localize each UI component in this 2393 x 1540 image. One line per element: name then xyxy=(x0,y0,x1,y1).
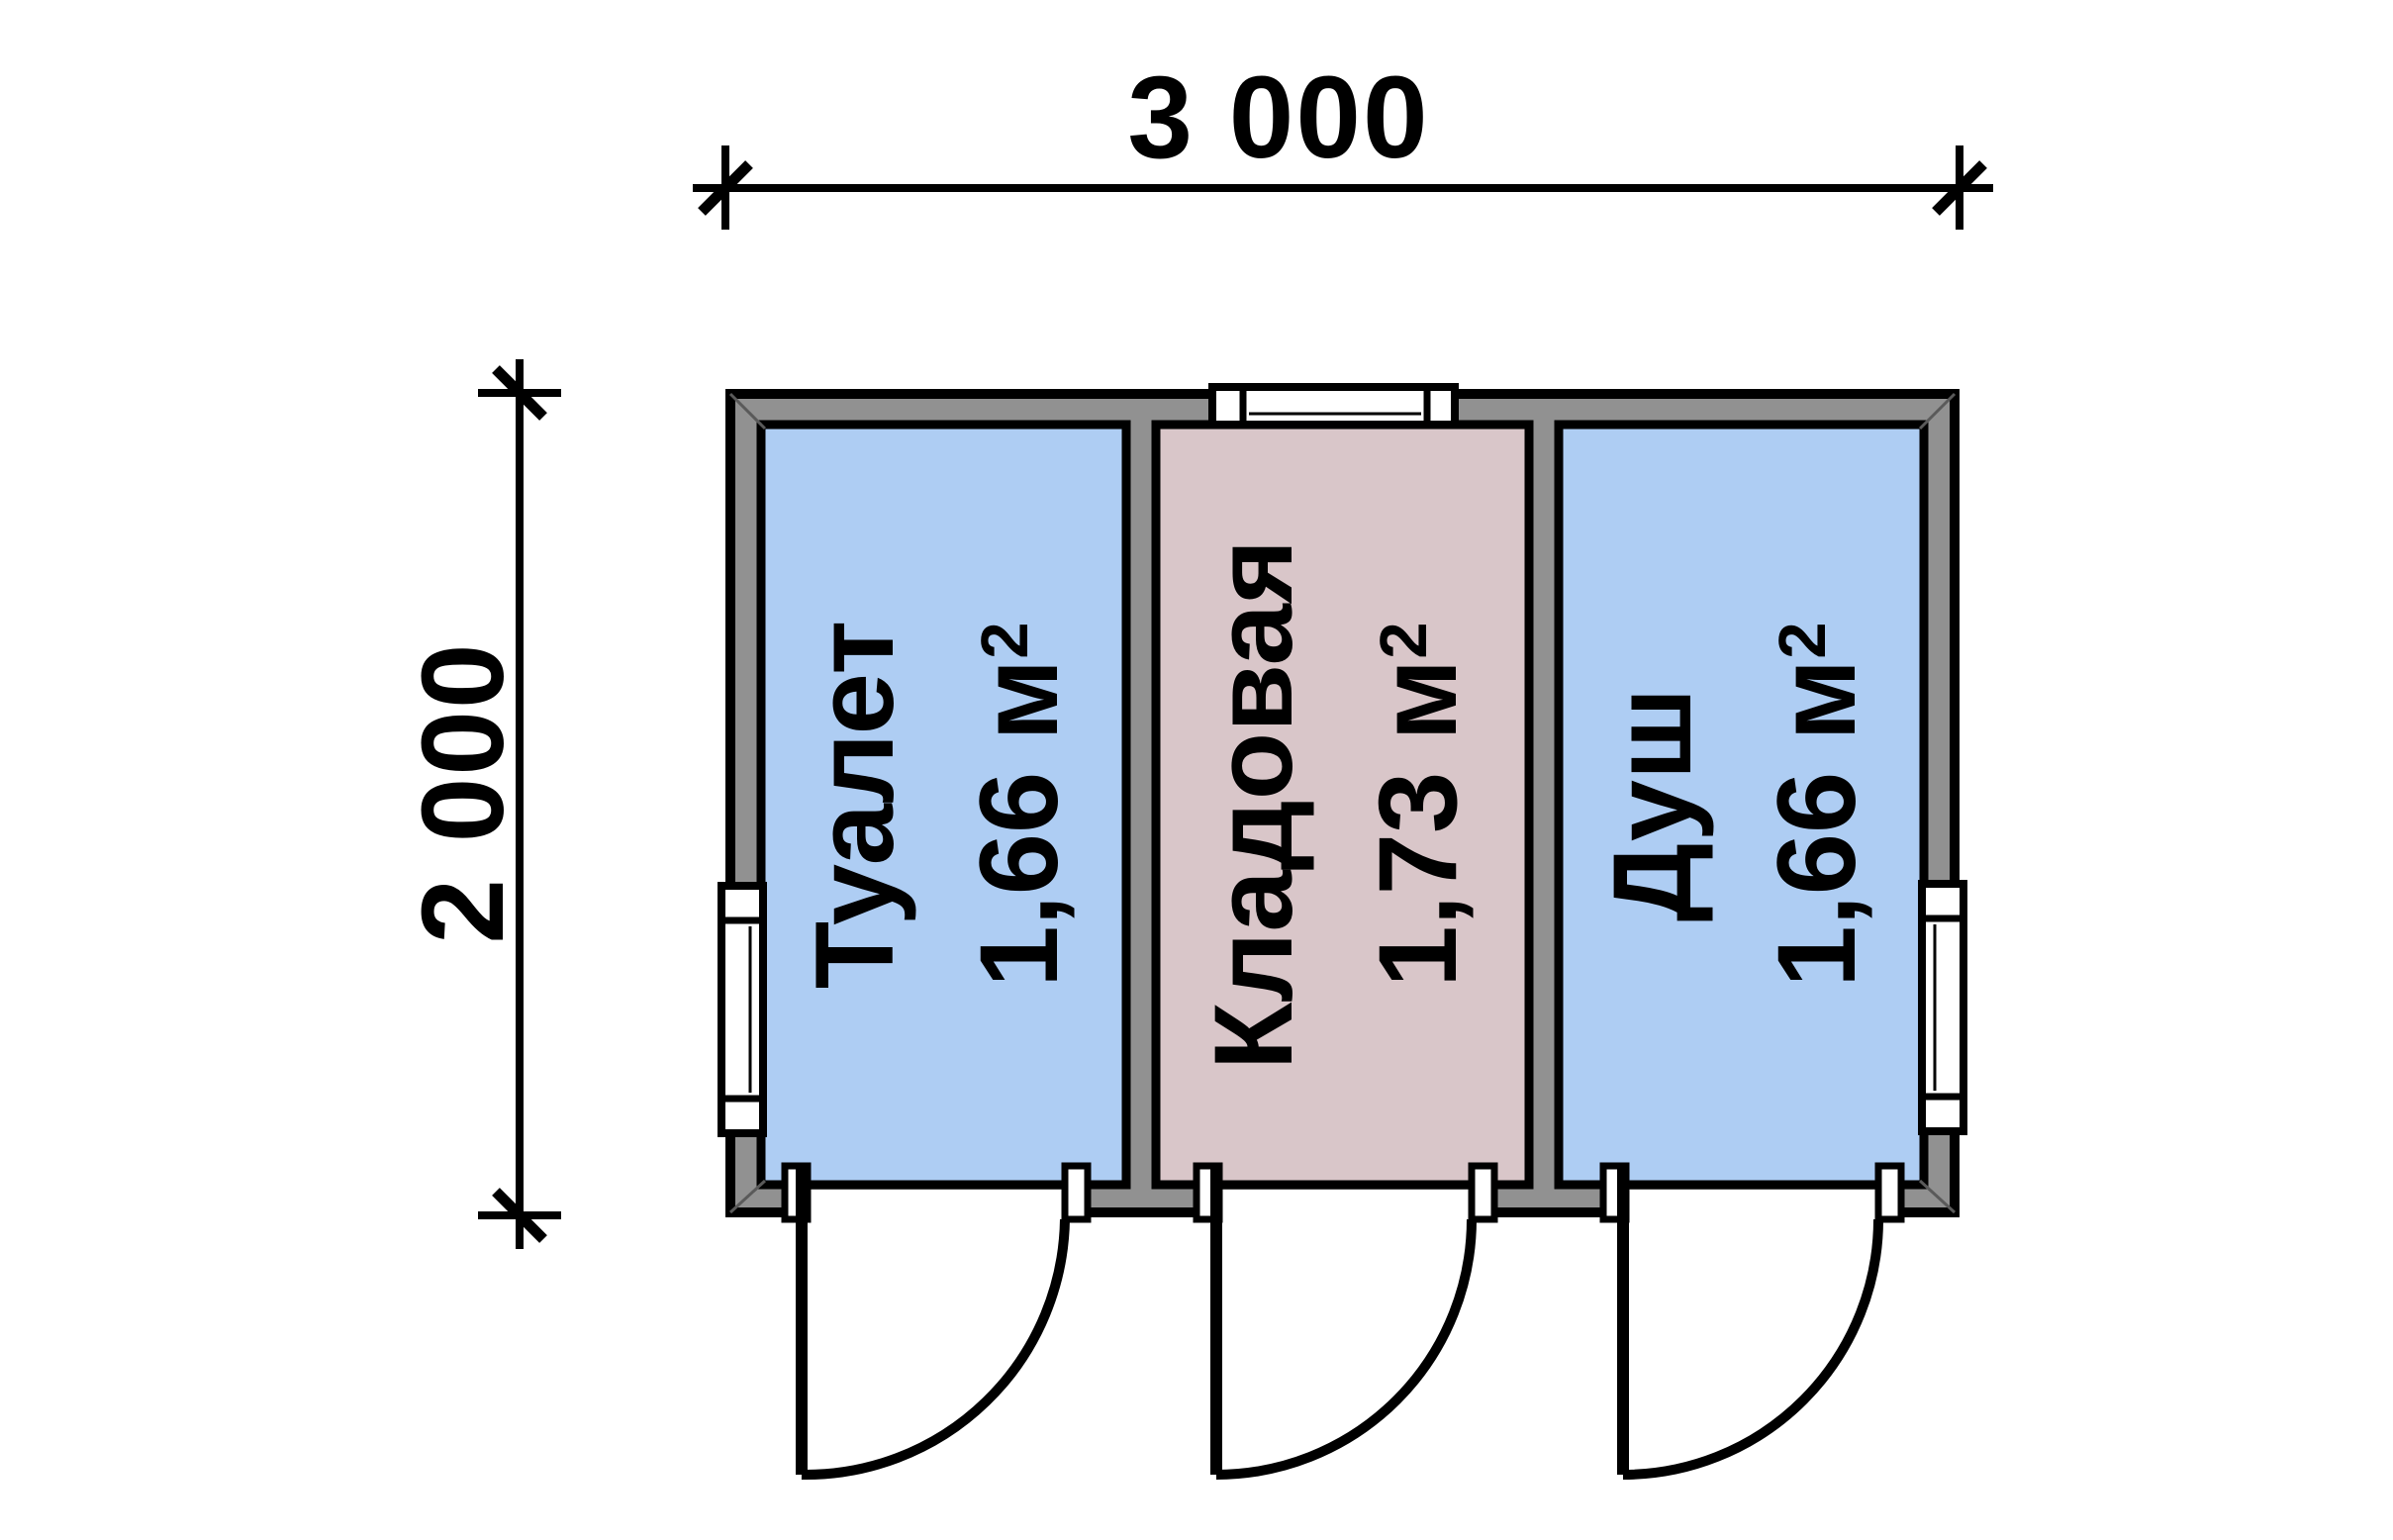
dimension-height-label: 2 000 xyxy=(403,575,524,1011)
room-area-storage: 1,73 м2 xyxy=(1329,419,1493,1191)
room-name-storage: Кладовая xyxy=(1179,419,1329,1191)
door-opening-toilet xyxy=(808,1190,1065,1225)
room-area-value-shower: 1,66 м xyxy=(1755,659,1878,988)
door-openings xyxy=(808,1190,1878,1225)
door-opening-storage xyxy=(1219,1190,1472,1225)
room-area-sup-toilet: 2 xyxy=(968,622,1042,658)
room-name-shower: Душ xyxy=(1578,419,1728,1191)
floor-plan-canvas: 3 000 2 000 Туалет 1,66 м2 Кладовая 1,73… xyxy=(0,0,2393,1540)
dimension-width-label: 3 000 xyxy=(1081,57,1477,178)
room-area-value-storage: 1,73 м xyxy=(1356,659,1480,988)
room-area-toilet: 1,66 м2 xyxy=(930,419,1095,1191)
room-area-sup-storage: 2 xyxy=(1367,622,1441,658)
window-right xyxy=(1922,884,1963,1131)
room-area-sup-shower: 2 xyxy=(1766,622,1840,658)
room-area-shower: 1,66 м2 xyxy=(1728,419,1892,1191)
room-area-value-toilet: 1,66 м xyxy=(957,659,1081,988)
window-left xyxy=(721,886,763,1133)
room-name-toilet: Туалет xyxy=(780,419,930,1191)
door-opening-shower xyxy=(1626,1190,1878,1225)
door-arc-shower xyxy=(1623,1219,1878,1475)
room-label-shower: Душ 1,66 м2 xyxy=(1578,419,1904,1191)
door-arc-toilet xyxy=(802,1219,1065,1475)
room-label-toilet: Туалет 1,66 м2 xyxy=(780,419,1106,1191)
room-label-storage: Кладовая 1,73 м2 xyxy=(1179,419,1505,1191)
door-arc-storage xyxy=(1216,1219,1472,1475)
